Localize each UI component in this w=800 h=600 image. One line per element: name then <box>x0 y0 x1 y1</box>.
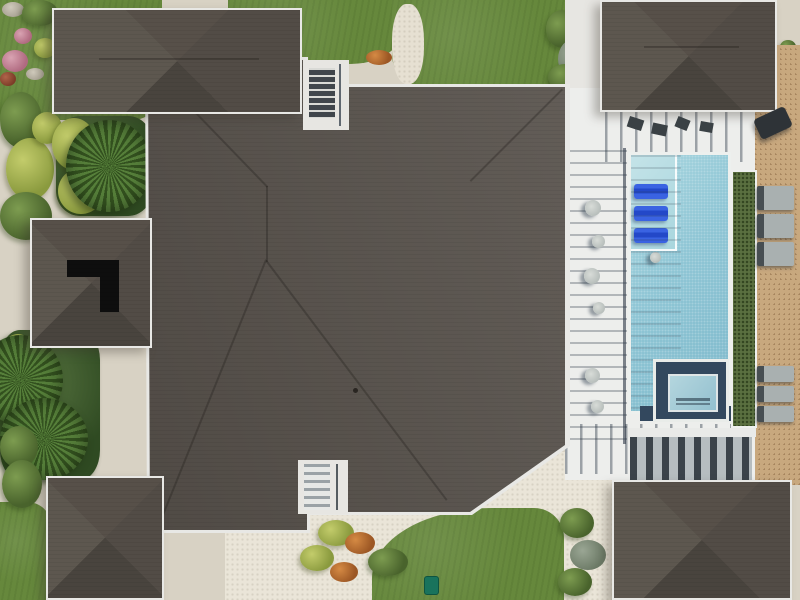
porch-railing <box>336 464 338 510</box>
rock <box>2 2 24 17</box>
deck-lounger <box>757 386 794 402</box>
shrub <box>6 138 54 200</box>
main-roof <box>148 58 567 532</box>
pergola-beam <box>628 428 756 437</box>
deck-lounger <box>757 242 794 266</box>
patio-table <box>585 200 601 216</box>
roof-vent-opening <box>100 260 119 312</box>
red-flowers <box>0 72 16 86</box>
patio-chair <box>591 400 604 413</box>
spa-bench <box>676 398 710 401</box>
shrub <box>560 508 594 538</box>
roof-wing-bottom-right <box>612 480 792 600</box>
deck-lounger <box>757 406 794 422</box>
spa-water <box>668 374 718 412</box>
deck-lounger <box>757 214 794 238</box>
wood-deck-lower <box>755 280 800 485</box>
orange-shrub <box>345 532 375 554</box>
orange-flowers <box>366 50 392 65</box>
patio-chair <box>592 235 605 248</box>
roof-hip-line <box>265 260 447 501</box>
flower-bed <box>0 0 60 95</box>
pink-flowers <box>14 28 32 44</box>
palm-tree <box>66 120 152 212</box>
rock <box>26 68 44 80</box>
spa <box>656 362 726 419</box>
patio-table <box>584 268 600 284</box>
roof-wing-left <box>30 218 152 348</box>
roof-wing-upper-right <box>600 0 777 112</box>
porch-steps <box>304 464 330 510</box>
pool-fence-line <box>623 148 626 444</box>
poolside-planter <box>731 170 757 428</box>
trash-can <box>424 576 439 595</box>
shrub <box>368 548 408 576</box>
roof-hip-line <box>160 259 267 521</box>
shrub <box>558 568 592 596</box>
patio-chair <box>593 302 605 314</box>
roof-wing-lower-left <box>46 476 164 600</box>
deck-lounger <box>757 186 794 210</box>
orange-shrub <box>330 562 358 582</box>
shrub <box>2 460 42 508</box>
roof-ridge <box>266 186 268 262</box>
roof-wing-upper-left <box>52 8 302 114</box>
roof-vent-dot <box>353 388 358 393</box>
pink-flowers <box>2 50 28 72</box>
aerial-photo <box>0 0 800 600</box>
sand-patch-top <box>392 4 424 84</box>
roof-ridge <box>99 58 259 60</box>
shrub <box>570 540 606 570</box>
stairs <box>309 68 335 118</box>
skylight-stair-court <box>303 60 349 130</box>
entry-porch <box>298 460 348 514</box>
shrub <box>300 545 334 571</box>
deck-lounger <box>757 366 794 382</box>
pergola <box>630 437 752 486</box>
palm-courtyard-upper <box>56 116 152 216</box>
roof-ridge <box>644 46 739 48</box>
roof-hip-line <box>470 89 563 182</box>
balcony-chair <box>699 121 714 133</box>
spa-bench <box>676 403 710 405</box>
lawn-bottom-left <box>0 502 52 600</box>
patio-table <box>585 368 600 383</box>
stair-railing <box>339 64 341 126</box>
